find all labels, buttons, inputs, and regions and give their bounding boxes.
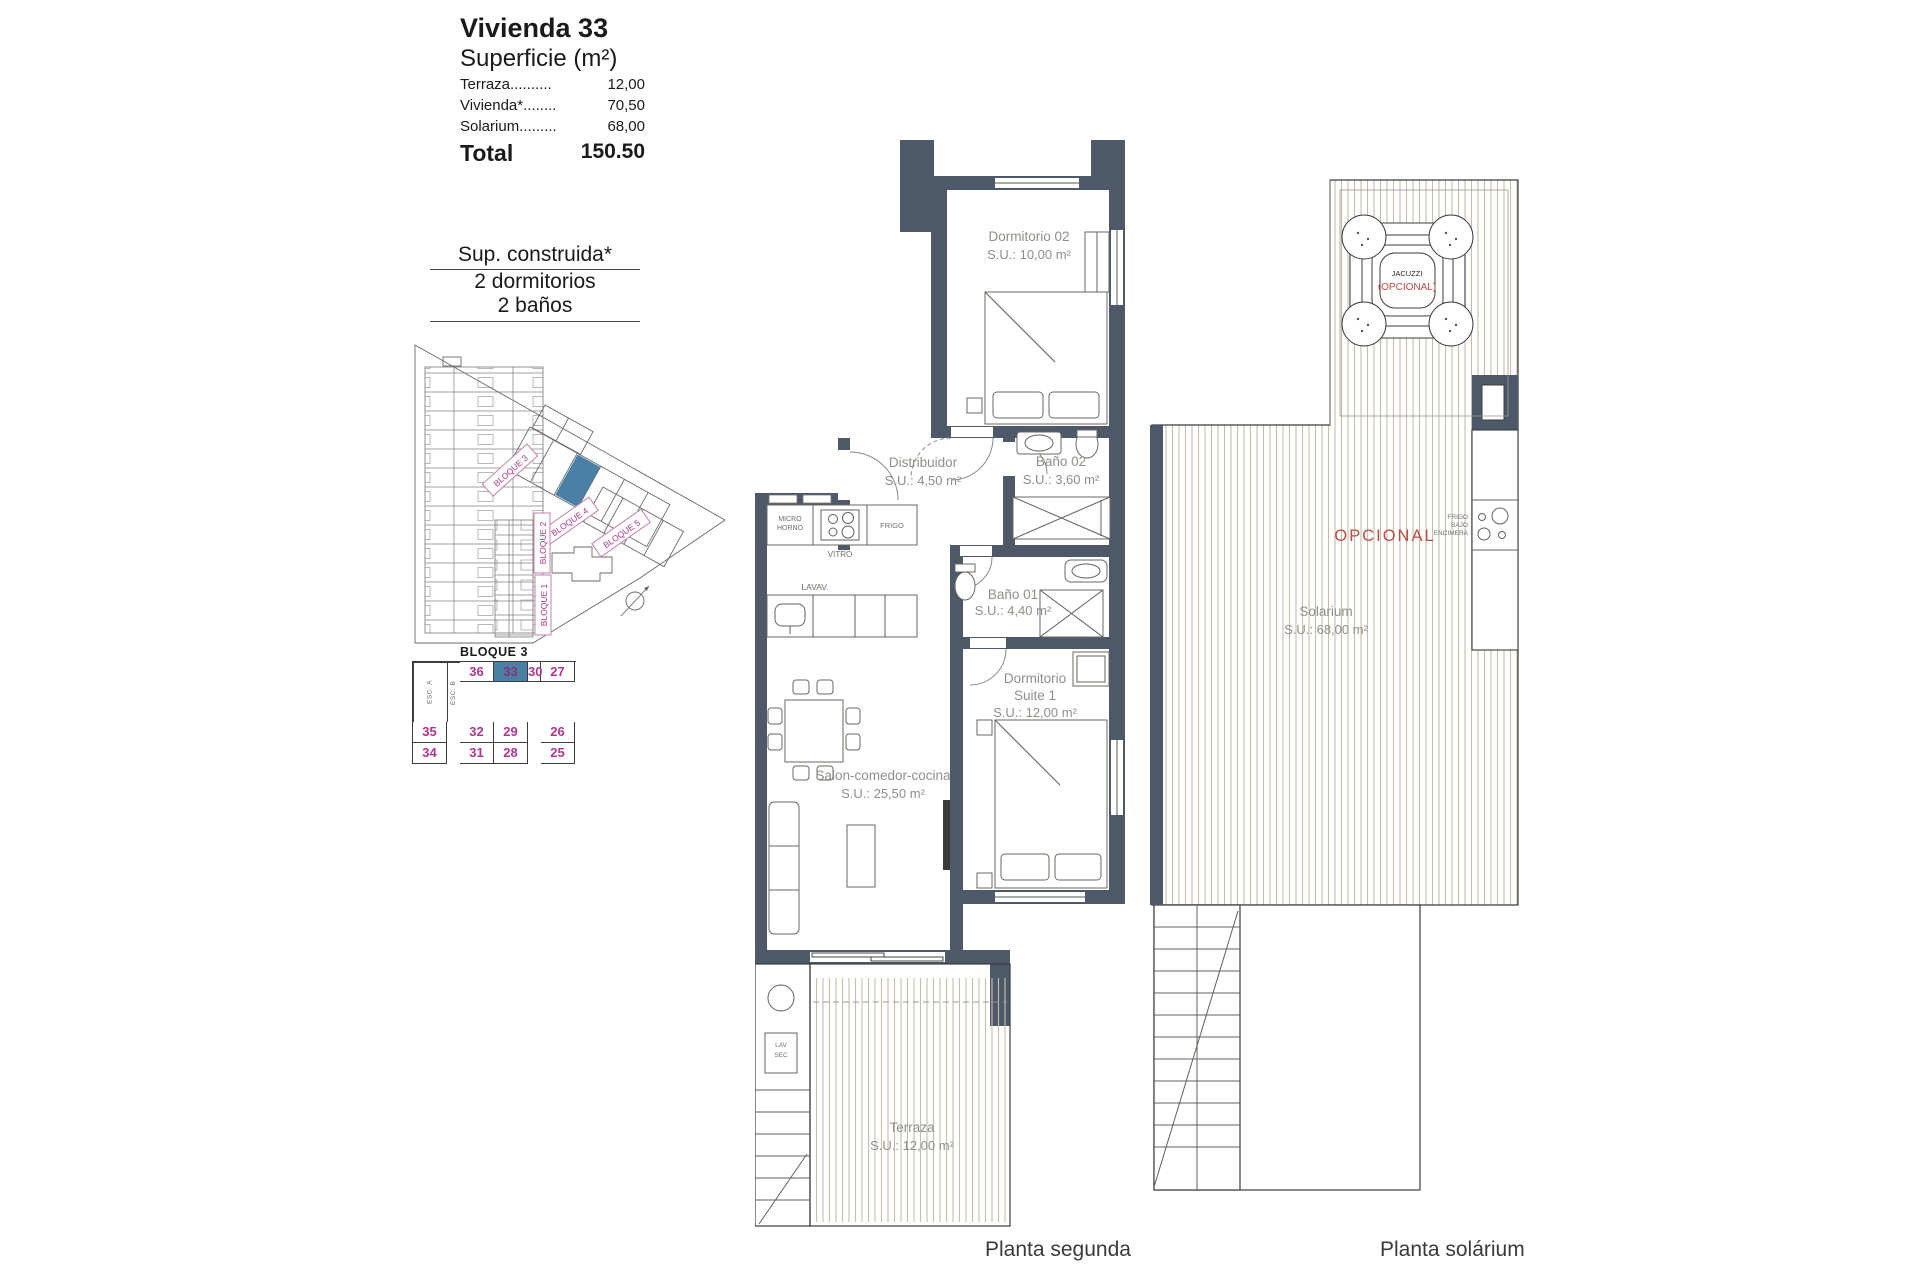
built-spec-panel: Sup. construida* 2 dormitorios 2 baños — [430, 243, 640, 322]
unit-cell: 25 — [541, 743, 575, 764]
svg-text:SEC: SEC — [774, 1052, 788, 1059]
unit-cell: 28 — [494, 743, 528, 764]
unit-cell: 29 — [494, 722, 528, 743]
bloque3-table-grid: 36 ESC. A 33 30 ESC. B 27 35 32 29 26 34… — [412, 661, 576, 764]
svg-text:S.U.: 3,60 m²: S.U.: 3,60 m² — [1023, 472, 1100, 487]
site-shed — [443, 357, 461, 366]
unit-cell: 31 — [460, 743, 494, 764]
frigo-bajo-label: FRIGO — [1447, 514, 1468, 521]
distribuidor-label: Distribuidor — [889, 455, 958, 470]
lavav-label: LAVAV. — [801, 582, 828, 592]
caption-planta-solarium: Planta solárium — [1380, 1238, 1525, 1262]
bano01-label: Baño 01 — [988, 587, 1038, 602]
micro-label: MICRO — [778, 516, 802, 523]
bano02-label: Baño 02 — [1036, 454, 1086, 469]
unit-cell: 32 — [460, 722, 494, 743]
suite-label: Dormitorio — [1004, 671, 1066, 686]
terraza-and-stairs: LAV SEC — [755, 964, 1010, 1226]
surface-row-label: Vivienda*........ — [460, 96, 556, 116]
unit-cell: 30 — [528, 662, 541, 682]
surface-subtitle: Superficie (m²) — [460, 44, 645, 74]
dining-table — [785, 700, 843, 762]
unit-cell: 27 — [541, 662, 575, 682]
surface-row-value: 12,00 — [597, 75, 645, 95]
bloque5-label: BLOQUE 5 — [592, 509, 650, 557]
surface-row-value: 68,00 — [597, 117, 645, 137]
middle-units — [495, 520, 533, 637]
svg-text:S.U.: 4,50 m²: S.U.: 4,50 m² — [885, 473, 962, 488]
bloque3-table-title: BLOQUE 3 — [412, 645, 576, 659]
surface-row-label: Solarium......... — [460, 117, 557, 137]
bloque3-unit-table: BLOQUE 3 36 ESC. A 33 30 ESC. B 27 35 32… — [412, 645, 576, 764]
total-value: 150.50 — [581, 140, 645, 167]
unit-cell: 36 — [460, 662, 494, 682]
staircase — [755, 964, 810, 1226]
solarium-left-wall — [1150, 425, 1163, 905]
terraza-deck — [813, 978, 1007, 1222]
svg-text:S.U.: 25,50 m²: S.U.: 25,50 m² — [841, 786, 925, 801]
surface-row-value: 70,50 — [597, 96, 645, 116]
solarium-stairs — [1154, 905, 1420, 1190]
toilet — [955, 572, 975, 600]
site-plan: BLOQUE 3 BLOQUE 4 BLOQUE 5 BLOQUE 2 BLOQ… — [395, 335, 735, 645]
surface-row-label: Terraza.......... — [460, 75, 552, 95]
plan-sheet: Vivienda 33 Superficie (m²) Terraza.....… — [0, 0, 1920, 1280]
unit-cell-highlighted: 33 — [494, 662, 528, 682]
surface-total-row: Total 150.50 — [460, 140, 645, 167]
svg-text:BLOQUE 2: BLOQUE 2 — [538, 521, 548, 564]
jacuzzi-optional-label: (OPCIONAL) — [1378, 282, 1436, 293]
nightstand — [977, 720, 992, 735]
salon-label: Salon-comedor-cocina — [815, 768, 951, 783]
spec-line-dormitorios: 2 dormitorios — [430, 270, 640, 294]
svg-text:LAV: LAV — [775, 1042, 787, 1049]
dorm02-label: Dormitorio 02 — [988, 229, 1069, 244]
stair-a-cell: ESC. A — [413, 662, 447, 722]
surface-row-solarium: Solarium......... 68,00 — [460, 117, 645, 137]
boiler-icon — [768, 985, 794, 1011]
nightstand — [977, 873, 992, 888]
surface-row-terraza: Terraza.......... 12,00 — [460, 75, 645, 95]
floor-plan-planta-solarium: JACUZZI (OPCIONAL) OPCIONAL FRIGO BAJO E… — [1150, 175, 1520, 1195]
north-compass-icon — [621, 586, 649, 616]
tv-unit — [943, 800, 950, 870]
svg-text:S.U.: 12,00 m²: S.U.: 12,00 m² — [993, 705, 1077, 720]
svg-text:HORNO: HORNO — [777, 525, 804, 532]
svg-text:BLOQUE 1: BLOQUE 1 — [539, 583, 549, 626]
jacuzzi-label: JACUZZI — [1392, 269, 1423, 278]
svg-text:S.U.: 10,00 m²: S.U.: 10,00 m² — [987, 247, 1071, 262]
bloque2-label: BLOQUE 2 — [534, 513, 550, 573]
svg-text:S.U.: 68,00 m²: S.U.: 68,00 m² — [1284, 622, 1368, 637]
surface-info-panel: Vivienda 33 Superficie (m²) Terraza.....… — [460, 12, 645, 167]
svg-text:ENCIMERA: ENCIMERA — [1434, 530, 1469, 537]
bloque1-label: BLOQUE 1 — [535, 575, 551, 635]
terraza-label: Terraza — [889, 1120, 935, 1135]
vitro-label: VITRO — [828, 550, 852, 559]
unit-title: Vivienda 33 — [460, 12, 645, 44]
svg-text:BAJO: BAJO — [1451, 522, 1468, 529]
svg-text:S.U.: 12,00 m²: S.U.: 12,00 m² — [870, 1138, 954, 1153]
unit-cell: 26 — [541, 722, 575, 743]
total-label: Total — [460, 140, 513, 167]
stair-b-cell: ESC. B — [447, 662, 460, 722]
caption-planta-segunda: Planta segunda — [985, 1238, 1131, 1262]
opcional-label: OPCIONAL — [1334, 527, 1435, 545]
wardrobe — [1073, 652, 1109, 686]
unit-cell: 34 — [413, 743, 447, 764]
solarium-label: Solarium — [1299, 604, 1352, 619]
sofa — [769, 802, 799, 934]
spec-line-construida: Sup. construida* — [430, 243, 640, 270]
frigo-label: FRIGO — [880, 521, 904, 530]
coffee-table — [847, 825, 875, 887]
svg-text:Suite 1: Suite 1 — [1014, 688, 1056, 703]
floor-plan-planta-segunda: LAV SEC Dormitorio 02 S.U.: 10,00 m² Dis… — [755, 140, 1140, 1230]
surface-row-vivienda: Vivienda*........ 70,50 — [460, 96, 645, 116]
bathtub — [1065, 560, 1107, 582]
nightstand — [967, 398, 982, 413]
salon-furniture — [768, 680, 950, 934]
svg-text:S.U.: 4,40 m²: S.U.: 4,40 m² — [975, 603, 1052, 618]
unit-cell: 35 — [413, 722, 447, 743]
spec-line-banos: 2 baños — [430, 294, 640, 322]
